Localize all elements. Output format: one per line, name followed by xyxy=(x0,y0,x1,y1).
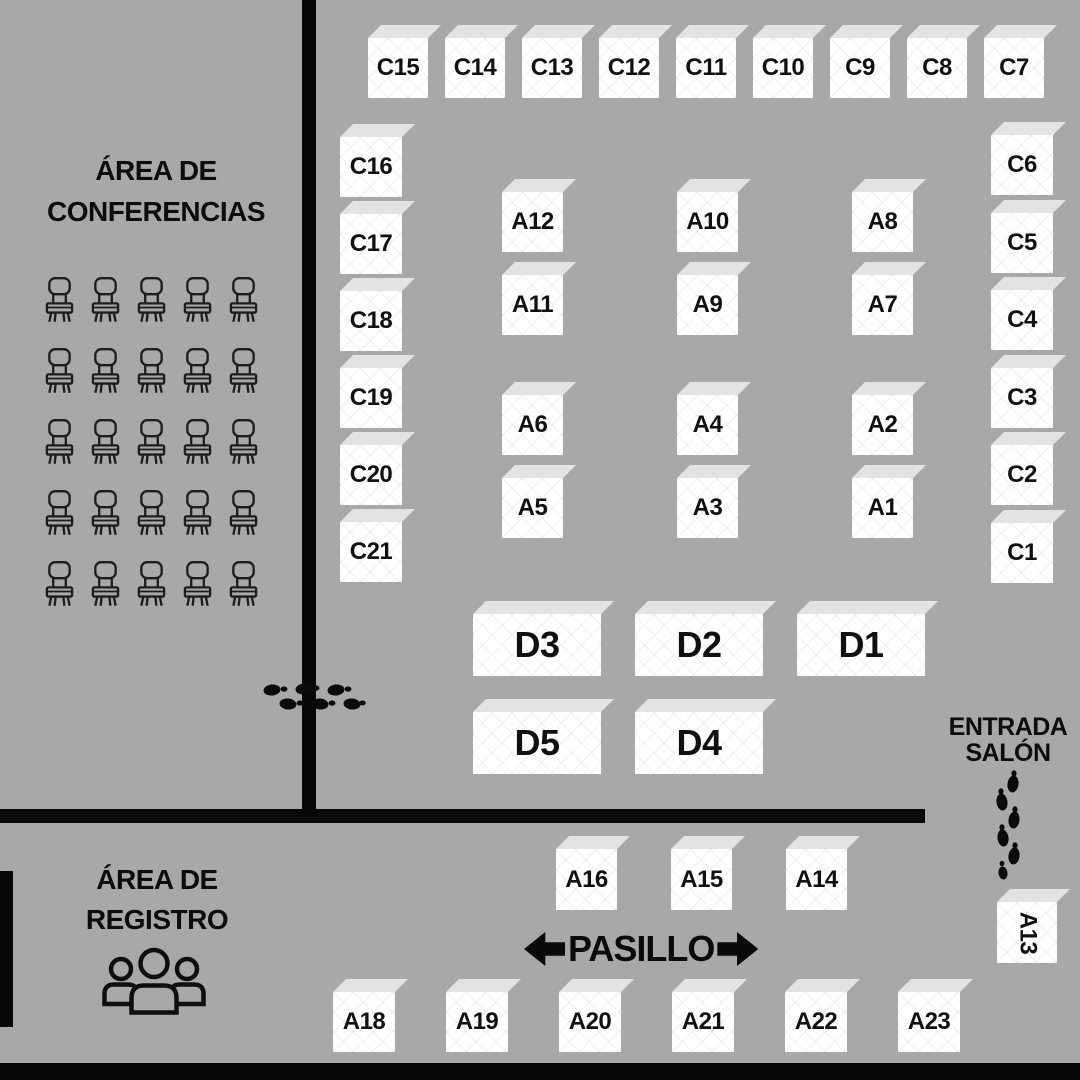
booth-label: C3 xyxy=(1007,384,1037,412)
arrow-right-icon xyxy=(717,932,758,966)
booth-label: C17 xyxy=(350,230,393,258)
booth-label: A2 xyxy=(868,411,898,439)
booth-label: C15 xyxy=(377,54,420,82)
conference-area-title-line1: ÁREA DE xyxy=(25,150,287,191)
booth-label: A14 xyxy=(795,866,838,894)
aisle-sign: PASILLO xyxy=(524,928,758,970)
booth-row-c-top: C15C14C13C12C11C10C9C8C7 xyxy=(368,38,1044,98)
chair-icon xyxy=(44,347,75,395)
booth: A15 xyxy=(671,849,732,910)
chair-icon xyxy=(90,276,121,324)
booth-label: A16 xyxy=(565,866,608,894)
registration-area-title-line2: REGISTRO xyxy=(32,900,282,940)
booth: C20 xyxy=(340,445,402,505)
booth: A9 xyxy=(677,275,738,335)
booth: A5 xyxy=(502,478,563,538)
booth-label: C9 xyxy=(845,54,875,82)
chair-icon xyxy=(228,560,259,608)
booth-label: A9 xyxy=(693,291,723,319)
booth: A7 xyxy=(852,275,913,335)
booth: A10 xyxy=(677,192,738,252)
chair-icon xyxy=(182,276,213,324)
booth: C11 xyxy=(676,38,736,98)
booth: C9 xyxy=(830,38,890,98)
booth: A21 xyxy=(672,992,734,1052)
aisle-label: PASILLO xyxy=(568,928,714,970)
booth-label: C6 xyxy=(1007,151,1037,179)
booth: D5 xyxy=(473,712,601,774)
booth-label: C11 xyxy=(685,54,726,82)
expo-floor-plan: ÁREA DE CONFERENCIAS xyxy=(0,0,1080,1080)
booth: D4 xyxy=(635,712,763,774)
booth-label: A12 xyxy=(511,208,554,236)
booth-label: A15 xyxy=(680,866,723,894)
chair-icon xyxy=(44,489,75,537)
chair-icon xyxy=(228,489,259,537)
chair-icon xyxy=(136,276,167,324)
booth: C21 xyxy=(340,522,402,582)
chair-icon xyxy=(44,560,75,608)
booth: A8 xyxy=(852,192,913,252)
wall-horizontal-middle xyxy=(0,809,925,823)
booth-label: A18 xyxy=(343,1008,386,1036)
booth: A19 xyxy=(446,992,508,1052)
booth: D1 xyxy=(797,614,925,676)
booth: A2 xyxy=(852,395,913,455)
booth-label: C10 xyxy=(762,54,805,82)
chair-icon xyxy=(182,560,213,608)
chair-icon xyxy=(136,560,167,608)
booth: C1 xyxy=(991,523,1053,583)
booth-label: A4 xyxy=(693,411,723,439)
chair-icon xyxy=(90,560,121,608)
booth: C13 xyxy=(522,38,582,98)
chair-icon xyxy=(90,489,121,537)
booth: D2 xyxy=(635,614,763,676)
booth: D3 xyxy=(473,614,601,676)
wall-left-edge xyxy=(0,871,13,1027)
booth: C12 xyxy=(599,38,659,98)
booth-label: A20 xyxy=(569,1008,612,1036)
booth-grid-a-upper: A12A10A8A11A9A7 xyxy=(502,192,913,335)
registration-area-title: ÁREA DE REGISTRO xyxy=(32,860,282,940)
booth: C7 xyxy=(984,38,1044,98)
booth: C16 xyxy=(340,137,402,197)
booth-label: D3 xyxy=(514,624,559,666)
booth-grid-a-lower: A6A4A2A5A3A1 xyxy=(502,395,913,538)
booth: C4 xyxy=(991,290,1053,350)
booth-row-d-lower: D5D4 xyxy=(473,712,763,774)
booth-label: A11 xyxy=(512,291,553,319)
booth-row-d-upper: D3D2D1 xyxy=(473,614,925,676)
conference-area-title: ÁREA DE CONFERENCIAS xyxy=(25,150,287,232)
registration-area-title-line1: ÁREA DE xyxy=(32,860,282,900)
booth: A11 xyxy=(502,275,563,335)
booth-label: C1 xyxy=(1007,539,1037,567)
booth-label: C2 xyxy=(1007,461,1037,489)
booth-label: A19 xyxy=(456,1008,499,1036)
booth: A4 xyxy=(677,395,738,455)
chair-icon xyxy=(182,347,213,395)
booth-label: D1 xyxy=(838,624,883,666)
booth-label: A10 xyxy=(686,208,729,236)
booth: A16 xyxy=(556,849,617,910)
booth: C14 xyxy=(445,38,505,98)
booth-label: A6 xyxy=(518,411,548,439)
booth-label: A7 xyxy=(868,291,898,319)
booth: C18 xyxy=(340,291,402,351)
booth-label: C8 xyxy=(922,54,952,82)
booth: C3 xyxy=(991,368,1053,428)
wall-bottom xyxy=(0,1063,1080,1080)
chair-icon xyxy=(90,347,121,395)
footprints-entrance-icon xyxy=(993,770,1023,882)
booth: C17 xyxy=(340,214,402,274)
chair-icon xyxy=(182,489,213,537)
booth-label: A23 xyxy=(908,1008,951,1036)
booth-label: C16 xyxy=(350,153,393,181)
chair-icon xyxy=(228,276,259,324)
people-icon xyxy=(98,946,210,1018)
booth-label: A3 xyxy=(693,494,723,522)
booth-label: C5 xyxy=(1007,229,1037,257)
booth-label: A13 xyxy=(1013,911,1041,954)
chair-icon xyxy=(136,347,167,395)
booth: A12 xyxy=(502,192,563,252)
chair-icon xyxy=(136,418,167,466)
conference-chairs xyxy=(44,276,259,608)
booth: A6 xyxy=(502,395,563,455)
booth-label: C20 xyxy=(350,461,393,489)
booth-row-a-bottom: A18A19A20A21A22A23 xyxy=(333,992,960,1052)
booth-label: C12 xyxy=(608,54,651,82)
footprints-horizontal-icon xyxy=(260,680,366,712)
booth: C2 xyxy=(991,445,1053,505)
booth: A22 xyxy=(785,992,847,1052)
booth-label: A5 xyxy=(518,494,548,522)
booth-label: C18 xyxy=(350,307,393,335)
booth: A20 xyxy=(559,992,621,1052)
booth: A23 xyxy=(898,992,960,1052)
entrance-title-line1: ENTRADA xyxy=(938,714,1078,740)
booth: A3 xyxy=(677,478,738,538)
booth: A18 xyxy=(333,992,395,1052)
booth-label: D5 xyxy=(514,722,559,764)
chair-icon xyxy=(90,418,121,466)
chair-icon xyxy=(136,489,167,537)
booth-label: D2 xyxy=(676,624,721,666)
booth-label: A1 xyxy=(868,494,898,522)
booth-label: C4 xyxy=(1007,306,1037,334)
booth: C10 xyxy=(753,38,813,98)
arrow-left-icon xyxy=(524,932,565,966)
conference-area-title-line2: CONFERENCIAS xyxy=(25,191,287,232)
chair-icon xyxy=(182,418,213,466)
booth: C5 xyxy=(991,213,1053,273)
booth-label: C7 xyxy=(999,54,1029,82)
booth-label: C13 xyxy=(531,54,574,82)
booth-label: A8 xyxy=(868,208,898,236)
entrance-title: ENTRADA SALÓN xyxy=(938,714,1078,766)
booth-column-c-left: C16C17C18C19C20C21 xyxy=(340,137,402,582)
booth-label: C19 xyxy=(350,384,393,412)
booth-label: A21 xyxy=(682,1008,725,1036)
booth-label: C21 xyxy=(350,538,393,566)
entrance-title-line2: SALÓN xyxy=(938,740,1078,766)
booth-a13: A13 xyxy=(997,902,1057,963)
booth-label: C14 xyxy=(454,54,497,82)
booth-row-a-aisle: A16A15A14 xyxy=(556,849,847,910)
booth: C15 xyxy=(368,38,428,98)
chair-icon xyxy=(44,276,75,324)
booth: A14 xyxy=(786,849,847,910)
chair-icon xyxy=(228,418,259,466)
booth-column-c-right: C6C5C4C3C2C1 xyxy=(991,135,1053,583)
booth: C6 xyxy=(991,135,1053,195)
booth: A1 xyxy=(852,478,913,538)
chair-icon xyxy=(228,347,259,395)
booth-label: D4 xyxy=(676,722,721,764)
booth: C19 xyxy=(340,368,402,428)
booth-label: A22 xyxy=(795,1008,838,1036)
chair-icon xyxy=(44,418,75,466)
booth: C8 xyxy=(907,38,967,98)
